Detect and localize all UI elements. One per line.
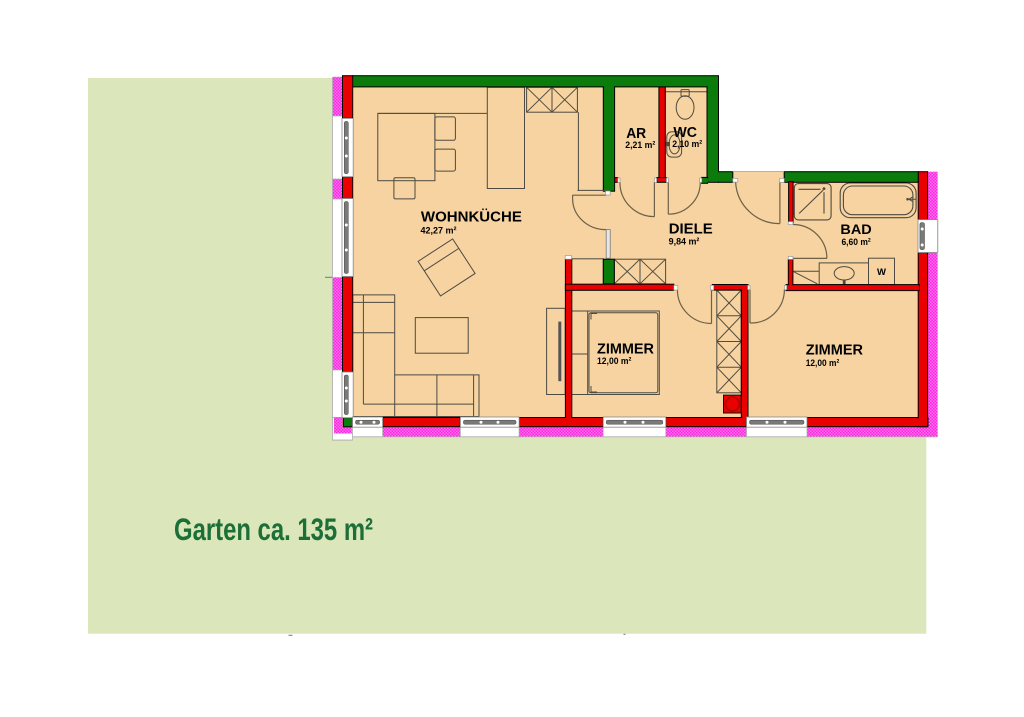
svg-text:42,27 m²: 42,27 m² [421,225,457,236]
svg-text:2,10 m²: 2,10 m² [672,139,702,150]
svg-text:9,84 m²: 9,84 m² [669,237,700,248]
svg-text:ZIMMER: ZIMMER [806,343,864,359]
svg-text:WOHNKÜCHE: WOHNKÜCHE [421,209,522,226]
svg-text:ZIMMER: ZIMMER [597,341,655,357]
svg-text:12,00 m²: 12,00 m² [597,356,631,367]
svg-text:DIELE: DIELE [669,221,713,238]
svg-text:2,21 m²: 2,21 m² [625,140,655,151]
svg-text:12,00 m²: 12,00 m² [806,358,840,369]
svg-text:W: W [877,267,886,278]
svg-text:BAD: BAD [840,221,871,237]
svg-text:6,60 m²: 6,60 m² [841,237,870,248]
svg-text:Garten ca. 135 m²: Garten ca. 135 m² [174,511,373,547]
